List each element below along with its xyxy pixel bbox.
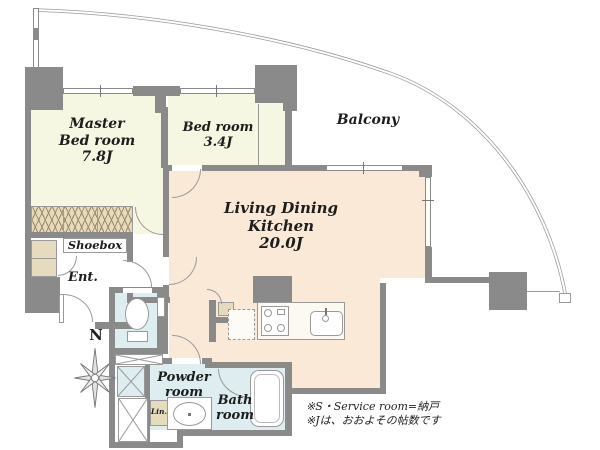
wall bbox=[425, 247, 432, 278]
wall bbox=[163, 168, 169, 257]
room-size: 20.0J bbox=[219, 235, 343, 253]
sink-faucet-base bbox=[322, 315, 329, 322]
balcony-tie-line bbox=[527, 291, 560, 292]
room-name-line: Master bbox=[45, 116, 149, 133]
window bbox=[425, 177, 431, 247]
window-mullion bbox=[363, 162, 364, 174]
wall bbox=[380, 283, 386, 388]
balcony-partition-block bbox=[33, 28, 39, 40]
storage-shelf bbox=[115, 354, 163, 365]
room-size: 7.8J bbox=[45, 149, 149, 166]
wall bbox=[285, 107, 292, 167]
master-bedroom-label: Master Bed room 7.8J bbox=[45, 116, 149, 166]
entrance-label: Ent. bbox=[58, 270, 108, 285]
kitchen-pillar bbox=[253, 276, 292, 303]
kitchen-desk-leg bbox=[209, 300, 216, 342]
balcony-rail-endcap bbox=[559, 293, 571, 303]
room-name-line: room bbox=[155, 385, 213, 400]
room-name-line: room bbox=[211, 408, 259, 423]
linen-label: Lin. bbox=[149, 408, 169, 417]
wall bbox=[183, 430, 292, 436]
window bbox=[180, 88, 255, 94]
wall bbox=[290, 388, 386, 394]
wall bbox=[285, 362, 292, 436]
room-name-line: Bath bbox=[211, 393, 259, 408]
stove-burner bbox=[264, 309, 272, 317]
window-mullion bbox=[422, 200, 434, 201]
room-name-line: Living Dining bbox=[219, 200, 343, 218]
wall bbox=[127, 238, 133, 262]
pillar bbox=[489, 272, 527, 310]
washbasin-faucet bbox=[188, 413, 191, 416]
wall bbox=[109, 442, 183, 448]
footnote-line: ※Jは、おおよその帖数です bbox=[306, 414, 441, 428]
wall bbox=[205, 362, 292, 368]
wall bbox=[25, 277, 60, 313]
shoebox-label: Shoebox bbox=[63, 239, 127, 253]
room-name-line: Bed room bbox=[174, 120, 262, 135]
toilet-paper-holder bbox=[157, 297, 165, 317]
door-opening bbox=[123, 288, 152, 293]
powder-room-label: Powder room bbox=[155, 370, 213, 401]
closet-divider bbox=[63, 207, 64, 233]
floor-plan: Master Bed room 7.8J Bed room 3.4J Livin… bbox=[0, 0, 600, 450]
washer-space bbox=[117, 366, 145, 397]
wall bbox=[419, 165, 432, 177]
room-size: 3.4J bbox=[174, 135, 262, 150]
room-name-line: Kitchen bbox=[219, 218, 343, 236]
window-mullion bbox=[100, 85, 101, 97]
toilet-bowl bbox=[125, 298, 149, 330]
closet-divider bbox=[97, 207, 98, 233]
room-name-line: Bed room bbox=[45, 133, 149, 150]
wall bbox=[133, 86, 180, 96]
stove-grill bbox=[277, 309, 285, 315]
wall bbox=[161, 107, 168, 168]
pipe-space bbox=[118, 398, 148, 442]
stove-burner bbox=[277, 324, 285, 332]
balcony-label: Balcony bbox=[318, 112, 418, 129]
wall bbox=[25, 94, 31, 277]
ldk-label: Living Dining Kitchen 20.0J bbox=[219, 200, 343, 253]
pillar bbox=[255, 65, 297, 103]
window bbox=[326, 165, 403, 171]
compass-north-label: N bbox=[84, 327, 108, 345]
window bbox=[63, 88, 133, 94]
footnote: ※S・Service room=納戸 ※Jは、おおよその帖数です bbox=[306, 400, 441, 428]
under-counter-cabinet bbox=[228, 309, 255, 340]
wall bbox=[425, 277, 489, 283]
stove-burner bbox=[264, 324, 272, 332]
footnote-line: ※S・Service room=納戸 bbox=[306, 400, 441, 414]
master-closet bbox=[31, 206, 133, 234]
window-mullion bbox=[216, 85, 217, 97]
bedroom-label: Bed room 3.4J bbox=[174, 120, 262, 151]
compass-rose-icon bbox=[72, 346, 118, 410]
room-name-line: Powder bbox=[155, 370, 213, 385]
shoe-cabinet-divider bbox=[31, 258, 57, 259]
toilet-tank bbox=[127, 331, 148, 342]
wall bbox=[202, 358, 212, 364]
bath-room-label: Bath room bbox=[211, 393, 259, 424]
